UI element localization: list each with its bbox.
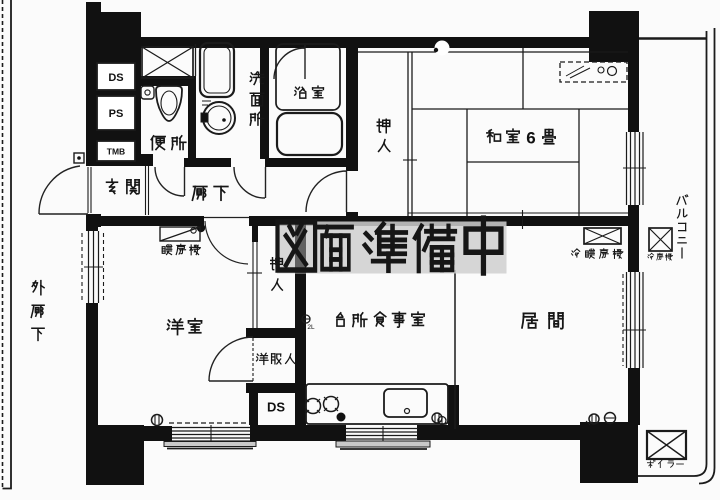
- svg-text:DS: DS: [108, 72, 123, 84]
- svg-text:PS: PS: [109, 108, 124, 120]
- svg-text:6: 6: [526, 129, 535, 148]
- svg-text:2L: 2L: [307, 324, 315, 331]
- svg-text:DS: DS: [267, 400, 285, 415]
- svg-text:TMB: TMB: [107, 147, 125, 157]
